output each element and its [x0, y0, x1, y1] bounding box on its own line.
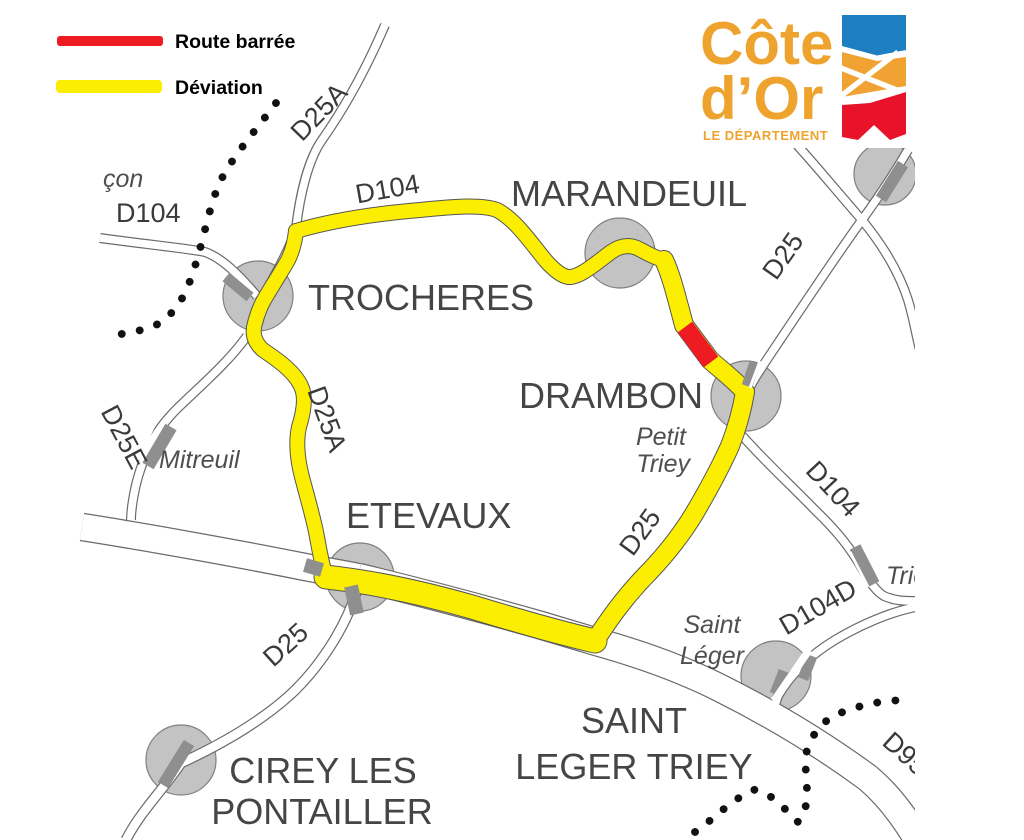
svg-text:Mitreuil: Mitreuil	[159, 446, 241, 474]
svg-text:çon: çon	[103, 165, 143, 193]
svg-text:TROCHERES: TROCHERES	[308, 277, 534, 318]
svg-text:Route barrée: Route barrée	[175, 31, 295, 53]
svg-text:LEGER TRIEY: LEGER TRIEY	[515, 746, 752, 787]
svg-text:CIREY LES: CIREY LES	[229, 750, 416, 791]
svg-text:DRAMBON: DRAMBON	[519, 375, 703, 416]
svg-text:D104: D104	[116, 198, 181, 228]
svg-text:SAINT: SAINT	[581, 700, 687, 741]
svg-text:Léger: Léger	[680, 642, 746, 670]
svg-text:Déviation: Déviation	[175, 77, 263, 99]
svg-text:LE DÉPARTEMENT: LE DÉPARTEMENT	[703, 128, 828, 143]
svg-text:Triey: Triey	[636, 450, 691, 478]
svg-text:PONTAILLER: PONTAILLER	[211, 791, 432, 832]
svg-text:Petit: Petit	[636, 423, 687, 451]
svg-text:MARANDEUIL: MARANDEUIL	[511, 173, 747, 214]
svg-text:ETEVAUX: ETEVAUX	[346, 495, 511, 536]
svg-text:d’Or: d’Or	[700, 65, 823, 132]
svg-text:Saint: Saint	[684, 611, 742, 639]
